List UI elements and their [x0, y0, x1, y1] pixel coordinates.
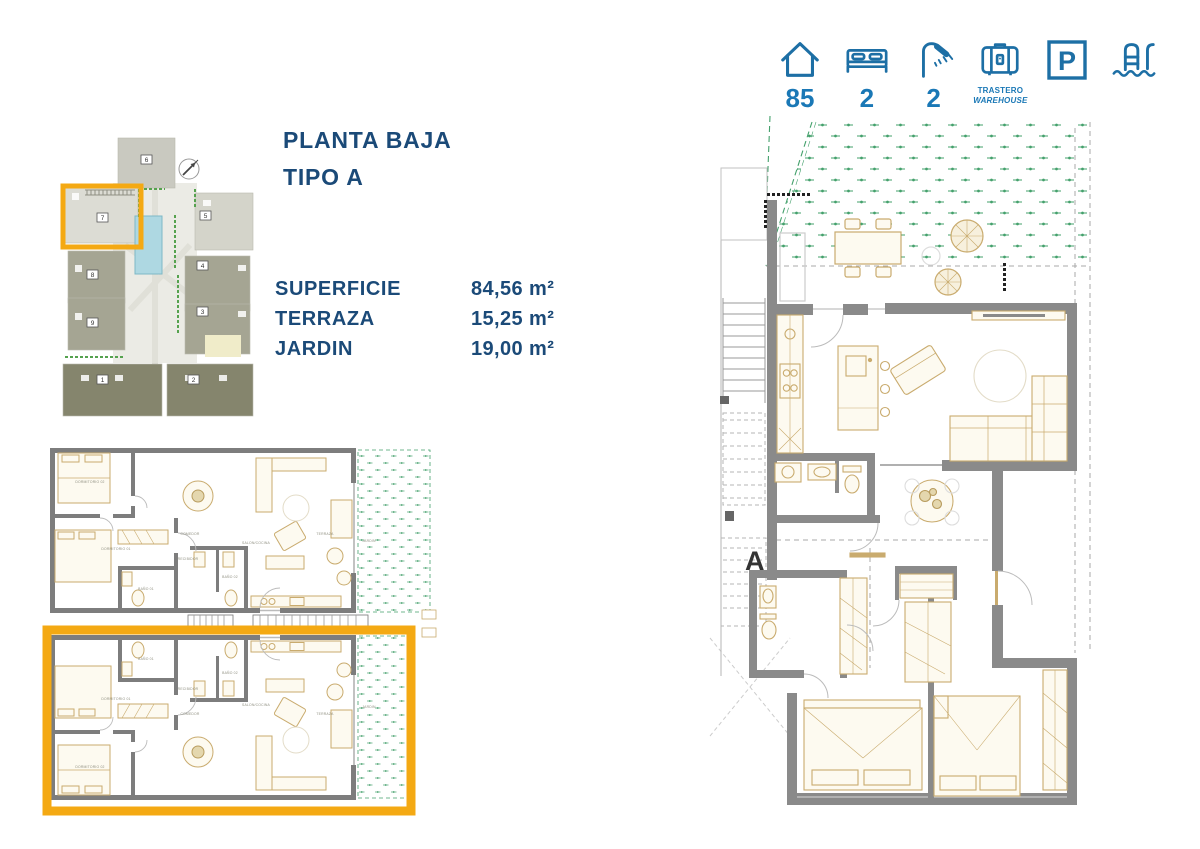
- svg-text:8: 8: [91, 272, 95, 279]
- area-value: 19,00 m²: [471, 334, 554, 364]
- svg-text:SALON/COCINA: SALON/COCINA: [242, 541, 271, 545]
- unit-b-bottom: [50, 635, 430, 800]
- svg-text:BAÑO 01: BAÑO 01: [138, 586, 154, 591]
- svg-text:COMEDOR: COMEDOR: [180, 712, 199, 716]
- area-row-jardin: JARDIN 19,00 m²: [275, 334, 575, 364]
- pool-icon: [1109, 36, 1159, 84]
- area-label: TERRAZA: [275, 304, 471, 334]
- stat-bedrooms: 2: [835, 36, 899, 111]
- house-icon: [777, 36, 823, 82]
- building-1: [63, 364, 162, 416]
- svg-text:6: 6: [145, 157, 149, 164]
- area-label: SUPERFICIE: [275, 274, 471, 304]
- svg-text:1: 1: [101, 377, 105, 384]
- bed-icon: [842, 36, 892, 82]
- parking-icon: P: [1043, 36, 1091, 84]
- building-4: [185, 256, 250, 311]
- site-sand-patch: [205, 335, 241, 357]
- svg-text:DORMITORIO 02: DORMITORIO 02: [75, 765, 104, 769]
- large-unit-plan: A: [700, 108, 1180, 818]
- svg-text:9: 9: [91, 320, 95, 327]
- floorplan-brochure-page: 85 2 2: [0, 0, 1200, 849]
- tree: [935, 269, 961, 295]
- svg-text:JARDIN: JARDIN: [362, 539, 376, 543]
- svg-text:DORMITORIO 02: DORMITORIO 02: [75, 480, 104, 484]
- storage-label-es: TRASTERO: [978, 86, 1024, 95]
- svg-text:BAÑO 02: BAÑO 02: [222, 574, 238, 579]
- storage-label-en: WAREHOUSE: [973, 96, 1027, 105]
- stat-parking: P: [1035, 36, 1099, 111]
- garden-area: [766, 122, 1090, 266]
- area-value: 84,56 m²: [471, 274, 554, 304]
- svg-text:TERRAZA: TERRAZA: [316, 532, 334, 536]
- svg-text:RECIBIDOR: RECIBIDOR: [178, 557, 199, 561]
- tree: [951, 220, 983, 252]
- areas-table: SUPERFICIE 84,56 m² TERRAZA 15,25 m² JAR…: [275, 274, 575, 364]
- north-arrow: [179, 159, 199, 179]
- small-building-plan: DORMITORIO 02 DORMITORIO 01 BAÑO 01 BAÑO…: [38, 438, 438, 833]
- svg-text:COMEDOR: COMEDOR: [180, 532, 199, 536]
- svg-text:BAÑO 02: BAÑO 02: [222, 670, 238, 675]
- svg-text:4: 4: [201, 263, 205, 270]
- area-label: JARDIN: [275, 334, 471, 364]
- svg-text:JARDIN: JARDIN: [362, 705, 376, 709]
- svg-text:7: 7: [101, 215, 105, 222]
- svg-text:TERRAZA: TERRAZA: [316, 712, 334, 716]
- plan-title-line1: PLANTA BAJA: [283, 122, 452, 159]
- svg-text:SALON/COCINA: SALON/COCINA: [242, 703, 271, 707]
- svg-text:2: 2: [192, 377, 196, 384]
- area-row-terraza: TERRAZA 15,25 m²: [275, 304, 575, 334]
- stat-storage: TRASTERO WAREHOUSE: [968, 36, 1032, 111]
- svg-text:3: 3: [201, 309, 205, 316]
- plan-title: PLANTA BAJA TIPO A: [283, 122, 452, 196]
- parking-letter: P: [1058, 46, 1076, 76]
- shower-icon: [911, 36, 957, 82]
- stat-pool: [1102, 36, 1166, 111]
- plan-title-line2: TIPO A: [283, 159, 452, 196]
- svg-text:DORMITORIO 01: DORMITORIO 01: [101, 697, 130, 701]
- interior-furniture: [760, 311, 1067, 796]
- area-value: 15,25 m²: [471, 304, 554, 334]
- storage-trunk-icon: [974, 36, 1026, 82]
- svg-text:DORMITORIO 01: DORMITORIO 01: [101, 547, 130, 551]
- unit-a-top: [50, 448, 430, 613]
- area-row-superficie: SUPERFICIE 84,56 m²: [275, 274, 575, 304]
- storage-label: TRASTERO WAREHOUSE: [973, 86, 1027, 107]
- svg-text:BAÑO 01: BAÑO 01: [138, 656, 154, 661]
- svg-text:5: 5: [204, 213, 208, 220]
- section-label: A: [745, 546, 765, 576]
- stats-bar: 85 2 2: [768, 36, 1166, 111]
- site-key-plan: 6 7 5 4 3 8 9 1 2: [55, 125, 260, 425]
- building-2: [167, 364, 253, 416]
- stat-bathrooms: 2: [902, 36, 966, 111]
- stat-total-area: 85: [768, 36, 832, 111]
- svg-text:RECIBIDOR: RECIBIDOR: [178, 687, 199, 691]
